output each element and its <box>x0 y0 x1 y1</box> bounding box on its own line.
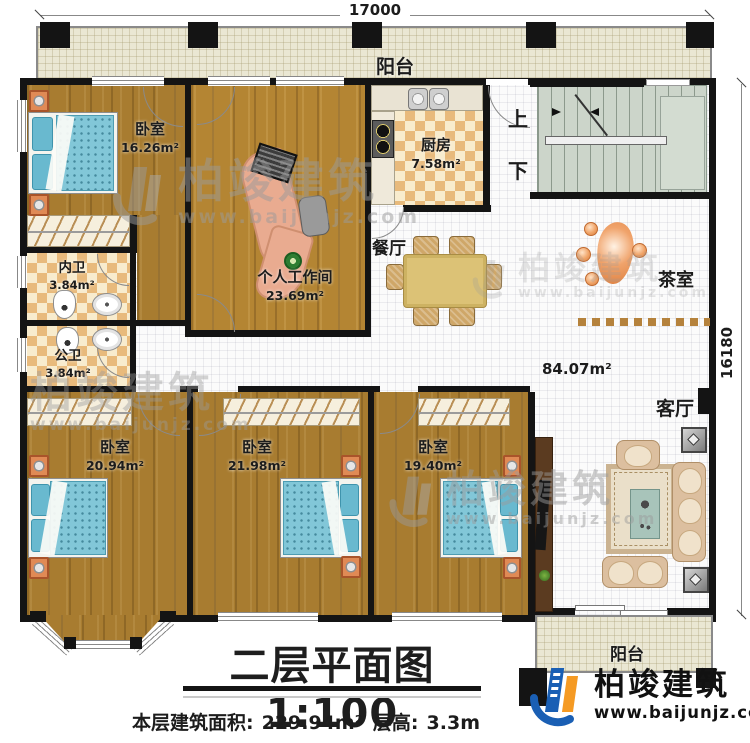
nightstand <box>29 90 49 112</box>
window <box>17 338 27 372</box>
tea-stool <box>632 243 647 258</box>
floor-height-value: 3.3m <box>427 712 480 734</box>
plant <box>539 570 550 581</box>
wall <box>403 205 491 212</box>
sofa-cushion <box>678 498 702 524</box>
closet <box>418 398 510 426</box>
bedroom-bl-label: 卧室 20.94m² <box>70 438 160 474</box>
bay-joint <box>30 611 46 622</box>
bedroom-br-label: 卧室 19.40m² <box>388 438 478 474</box>
office-chair <box>297 194 330 238</box>
dining-chair <box>449 236 475 256</box>
wall <box>187 392 193 615</box>
kitchen-sink <box>408 88 428 110</box>
sofa-cushion <box>624 445 652 467</box>
inner-bath-label: 内卫 3.84m² <box>44 260 100 292</box>
wall <box>530 192 710 199</box>
sofa-cushion <box>678 530 702 556</box>
floor-plan-canvas: 17000 16180 阳台 <box>0 0 750 743</box>
tea-stool <box>576 247 591 262</box>
floor-area-value: 229.94m² <box>262 712 363 734</box>
stair-arrow <box>590 108 599 116</box>
bay-window-center <box>72 640 134 649</box>
column <box>686 22 714 48</box>
nightstand <box>341 455 361 477</box>
public-bath-label: 公卫 3.84m² <box>40 348 96 380</box>
closet <box>27 398 132 426</box>
dining-chair <box>413 236 439 256</box>
bedroom-bm-label: 卧室 21.98m² <box>212 438 302 474</box>
wall <box>20 386 136 392</box>
nightstand <box>341 556 361 578</box>
title-rule-thick <box>183 686 481 691</box>
wall-stub <box>698 388 716 414</box>
workroom-label: 个人工作间 23.69m² <box>230 268 360 304</box>
pillow <box>340 484 359 516</box>
brand-logo-icon <box>526 662 586 728</box>
brand-logo-text: 柏竣建筑 <box>594 668 750 702</box>
nightstand <box>29 455 49 477</box>
brand-logo: 柏竣建筑 www.baijunjz.com <box>526 662 750 728</box>
toilet <box>53 290 76 319</box>
tea-stool <box>584 222 598 236</box>
dining-label: 餐厅 <box>372 234 406 259</box>
wall <box>238 386 380 392</box>
column <box>40 22 70 48</box>
dimension-height: 16180 <box>718 318 736 388</box>
tea-room-label: 茶室 <box>658 266 694 292</box>
wall <box>667 608 716 615</box>
wall <box>20 247 137 253</box>
sink <box>92 293 122 316</box>
nightstand <box>503 455 521 477</box>
wall <box>528 392 535 615</box>
sliding-door <box>575 605 625 611</box>
opening <box>486 79 528 85</box>
window <box>208 76 270 86</box>
bay-joint <box>160 611 176 622</box>
window <box>218 612 318 622</box>
wall <box>368 392 374 615</box>
sofa-cushion <box>608 561 634 585</box>
wall <box>20 320 191 326</box>
nightstand <box>29 557 49 579</box>
wall <box>130 320 136 392</box>
stair-window <box>646 79 690 86</box>
window <box>92 76 164 86</box>
coffee-table <box>630 489 660 539</box>
wall <box>365 85 371 337</box>
kitchen-sink <box>429 88 449 110</box>
nightstand <box>29 194 49 216</box>
wall <box>418 386 530 392</box>
window <box>276 76 344 86</box>
column <box>352 22 382 48</box>
dimension-width: 17000 <box>340 1 410 19</box>
closet <box>223 398 360 426</box>
living-label: 客厅 <box>656 394 694 421</box>
bay-joint <box>130 637 142 649</box>
balcony-top-label: 阳台 <box>355 52 435 79</box>
pillow <box>32 117 53 151</box>
window <box>17 256 27 288</box>
pillow <box>500 484 518 516</box>
stove <box>372 120 394 158</box>
kitchen-label: 厨房 7.58m² <box>405 136 467 172</box>
stair-handrail <box>545 136 667 145</box>
dining-chair <box>386 264 404 290</box>
stair-arrow <box>552 108 561 116</box>
bedroom-tl-label: 卧室 16.26m² <box>105 120 195 156</box>
column <box>188 22 218 48</box>
window <box>392 612 502 622</box>
bay-joint <box>64 637 76 649</box>
nightstand <box>503 557 521 579</box>
sofa-cushion <box>637 561 663 585</box>
sink <box>92 328 122 351</box>
title-rule-thin <box>183 696 481 698</box>
tea-stool <box>585 272 599 286</box>
floor-area-label: 本层建筑面积: <box>132 708 254 735</box>
window <box>17 100 27 152</box>
dining-table <box>403 254 487 308</box>
plan-footer: 本层建筑面积: 229.94m² 层高: 3.3m <box>132 708 480 735</box>
stairs-up-label: 上 <box>508 103 528 132</box>
suite-corridor-floor <box>137 215 185 320</box>
dimension-line-right <box>741 84 742 616</box>
floor-height-label: 层高: <box>373 708 419 735</box>
dining-chair <box>449 306 475 326</box>
stairs-down-label: 下 <box>508 155 528 184</box>
dining-chair <box>413 306 439 326</box>
sofa-cushion <box>678 468 702 494</box>
hall-area-label: 84.07m² <box>542 360 612 378</box>
tea-room-divider <box>578 318 710 326</box>
brand-logo-url: www.baijunjz.com <box>594 703 750 722</box>
closet <box>27 215 130 247</box>
wall <box>130 247 136 326</box>
wall <box>530 78 644 87</box>
column <box>526 22 556 48</box>
